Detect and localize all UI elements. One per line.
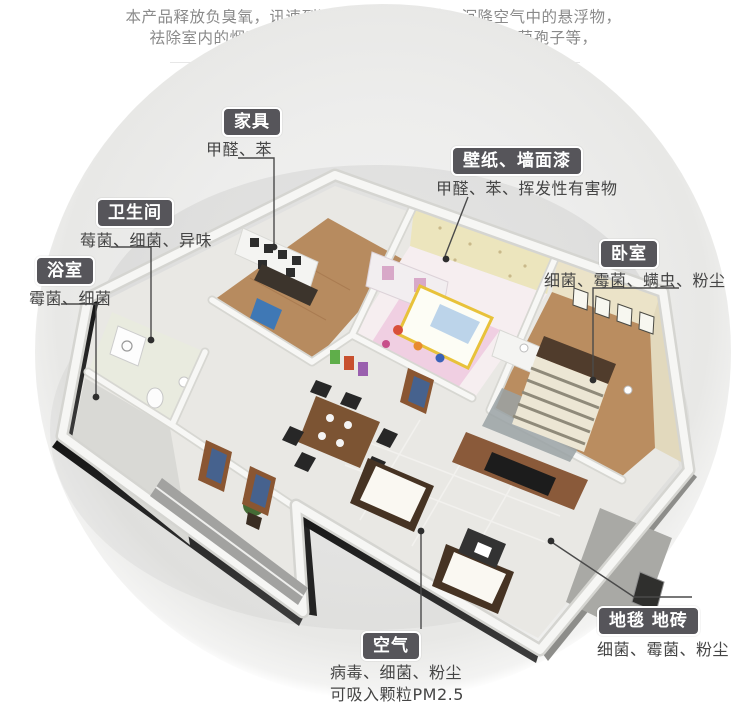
toy-ball-orange bbox=[414, 342, 423, 351]
toy-ball-blue bbox=[436, 354, 445, 363]
toilet-fixture bbox=[147, 388, 163, 408]
floorplan-illustration bbox=[0, 0, 747, 707]
callout-wallpaper-title: 壁纸、墙面漆 bbox=[451, 146, 583, 176]
callout-toilet-desc: 莓菌、细菌、异味 bbox=[80, 231, 212, 251]
callout-air-title: 空气 bbox=[361, 631, 421, 661]
callout-toilet-title: 卫生间 bbox=[96, 198, 174, 228]
callout-furniture-desc: 甲醛、苯 bbox=[206, 140, 272, 160]
bedside-lamp bbox=[520, 344, 528, 352]
callout-bath-desc: 霉菌、细菌 bbox=[29, 289, 112, 309]
callout-carpet-title: 地毯 地砖 bbox=[597, 606, 700, 636]
callout-air-desc: 病毒、细菌、粉尘 bbox=[330, 663, 462, 683]
callout-bath-title: 浴室 bbox=[35, 256, 95, 286]
callout-bedroom-title: 卧室 bbox=[599, 239, 659, 269]
callout-wallpaper-desc: 甲醛、苯、挥发性有害物 bbox=[436, 179, 618, 199]
bedside-lamp-2 bbox=[624, 386, 632, 394]
page: 本产品释放负臭氧，讯速到达房间内每个角落，沉降空气中的悬浮物， 祛除室内的烟味，… bbox=[0, 0, 747, 707]
callout-air-desc-2: 可吸入颗粒PM2.5 bbox=[330, 685, 464, 705]
toy-ball-pink bbox=[382, 340, 390, 348]
callout-carpet-desc: 细菌、霉菌、粉尘 bbox=[597, 640, 729, 660]
callout-furniture-title: 家具 bbox=[222, 107, 282, 137]
toy-ball-red bbox=[393, 325, 403, 335]
callout-bedroom-desc: 细菌、霉菌、螨虫、粉尘 bbox=[544, 271, 726, 291]
